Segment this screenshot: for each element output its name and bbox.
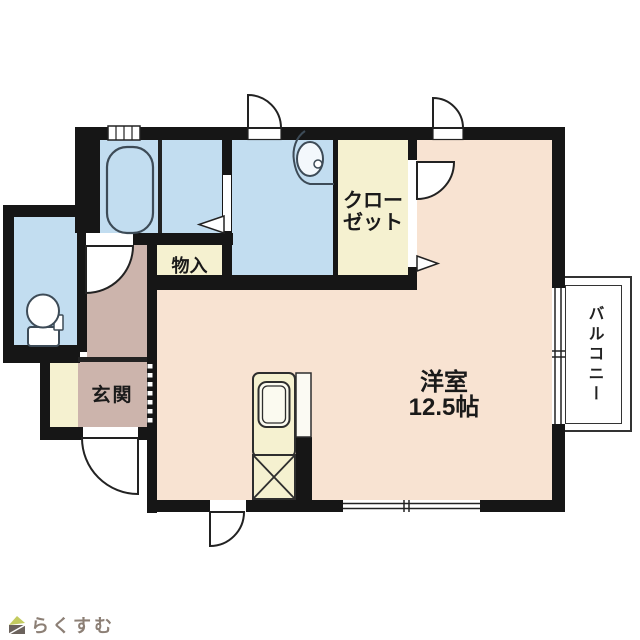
toilet-icon [27, 295, 63, 347]
watermark-text: らくすむ [31, 612, 115, 638]
main-room-label: 洋室 12.5帖 [384, 370, 504, 420]
appliance-space-icon [253, 455, 295, 499]
entrance-door-swing [82, 438, 138, 494]
shower-door-triangle [199, 216, 224, 233]
bottom-window [343, 500, 480, 512]
washroom-door-swing [248, 95, 281, 128]
rakusumu-logo-icon [8, 615, 26, 635]
balcony-window [552, 288, 565, 424]
main-room-door-swing [433, 98, 463, 128]
closet-label: クロー ゼット [338, 190, 408, 234]
main-room-size: 12.5帖 [384, 395, 504, 420]
closet-label-line2: ゼット [338, 212, 408, 234]
bottom-door-swing [210, 512, 244, 546]
closet-door-triangle [417, 256, 438, 271]
watermark: らくすむ [8, 612, 115, 638]
closet-label-line1: クロー [338, 190, 408, 212]
kitchen-side-panel [296, 373, 311, 437]
kitchen-counter [253, 373, 311, 499]
storage-label: 物入 [157, 252, 222, 278]
bathtub-icon [107, 147, 153, 233]
bathroom-door-swing [86, 246, 133, 293]
fixtures-layer [0, 0, 640, 640]
entrance-wall-dashes [148, 364, 153, 423]
floorplan: バルコニー [0, 0, 640, 640]
entrance-label: 玄関 [78, 380, 147, 407]
bathroom-window [108, 126, 140, 140]
closet-door-swing [417, 162, 454, 199]
washbasin-icon [293, 131, 334, 184]
main-room-name: 洋室 [384, 370, 504, 395]
